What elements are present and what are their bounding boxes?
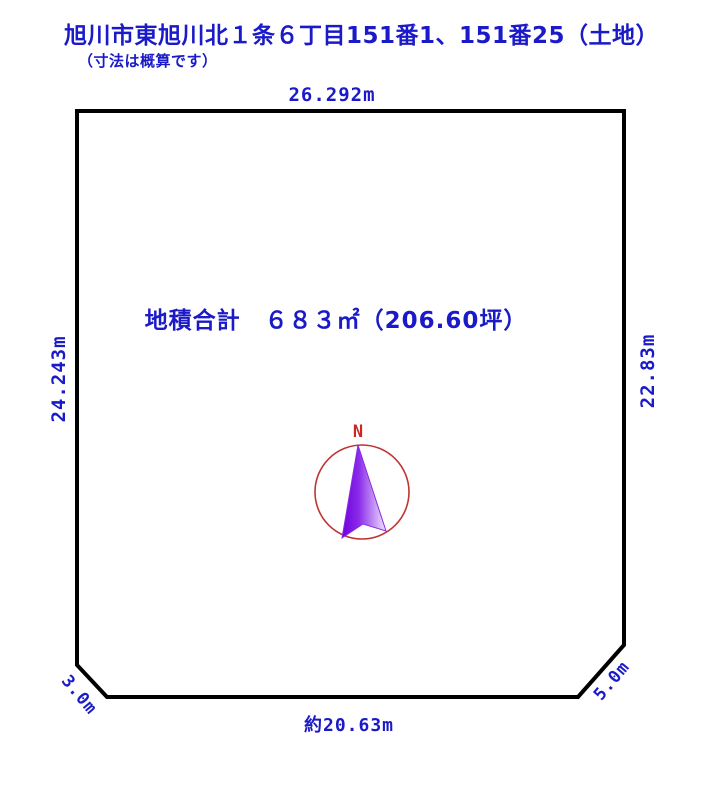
land-plot-diagram: 旭川市東旭川北１条６丁目151番1、151番25（土地） （寸法は概算です） 2…	[0, 0, 722, 800]
dimension-top: 26.292m	[288, 84, 375, 106]
dimension-right: 22.83m	[637, 334, 659, 409]
compass-north-label: N	[353, 422, 363, 442]
dimension-left: 24.243m	[48, 335, 70, 422]
plot-boundary	[77, 111, 624, 697]
total-area-label: 地積合計 ６８３㎡（206.60坪）	[145, 301, 528, 335]
dimension-bottom: 約20.63m	[304, 711, 394, 737]
